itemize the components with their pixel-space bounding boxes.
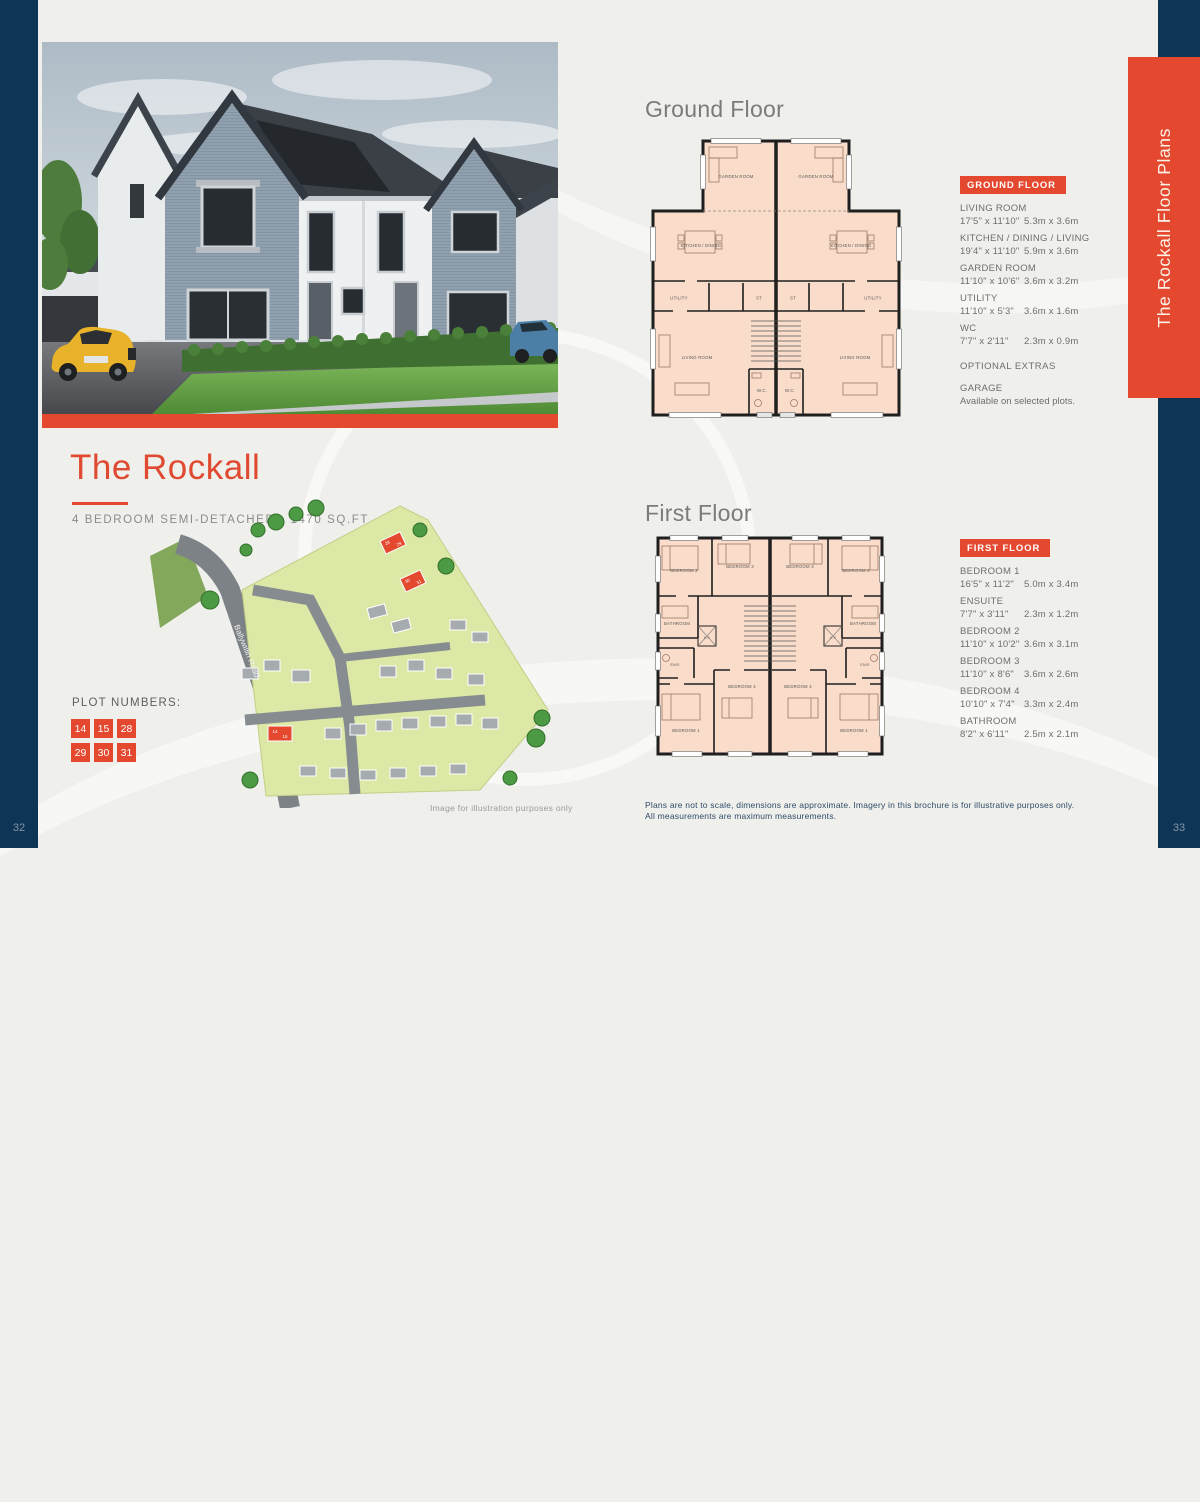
spec-row: UTILITY 11'10" x 5'3"3.6m x 1.6m — [960, 292, 1135, 318]
ground-floor-heading: Ground Floor — [645, 96, 784, 123]
room-label: BEDROOM 3 — [726, 564, 754, 569]
room-label: W.C. — [757, 388, 767, 393]
room-label: BATHROOM — [850, 621, 876, 626]
spec-row: LIVING ROOM 17'5" x 11'10"5.3m x 3.6m — [960, 202, 1135, 228]
room-label: GARDEN ROOM — [718, 174, 753, 179]
side-banner-label: The Rockall Floor Plans — [1154, 128, 1175, 328]
house-photo — [42, 42, 558, 414]
garage-row: GARAGE Available on selected plots. — [960, 382, 1135, 408]
optional-extras-label: OPTIONAL EXTRAS — [960, 360, 1135, 373]
image-caption: Image for illustration purposes only — [430, 803, 573, 813]
first-floor-heading: First Floor — [645, 500, 752, 527]
room-label: KITCHEN / DINING — [681, 243, 722, 248]
site-plan: 28 29 30 31 14 15 Ballywillin Road — [150, 478, 562, 808]
room-label: BATHROOM — [664, 621, 690, 626]
room-label: BEDROOM 2 — [842, 568, 870, 573]
ground-floor-plan-drawing: GARDEN ROOM GARDEN ROOM KITCHEN / DINING… — [645, 131, 907, 423]
room-label: H.P — [830, 636, 836, 640]
room-label: LIVING ROOM — [840, 355, 871, 360]
room-label: H.P — [704, 636, 710, 640]
spec-row: BEDROOM 2 11'10" x 10'2"3.6m x 3.1m — [960, 625, 1135, 651]
room-label: KITCHEN / DINING — [831, 243, 872, 248]
room-label: LIVING ROOM — [682, 355, 713, 360]
plot-badge: 29 — [71, 743, 90, 762]
plot-marker: 15 — [282, 734, 288, 739]
room-label: EN/S — [860, 663, 870, 667]
room-label: BEDROOM 4 — [784, 684, 812, 689]
room-label: UTILITY — [864, 296, 881, 301]
room-label: BEDROOM 4 — [728, 684, 756, 689]
disclaimer-line-1: Plans are not to scale, dimensions are a… — [645, 800, 1074, 811]
plot-badge: 14 — [71, 719, 90, 738]
disclaimer: Plans are not to scale, dimensions are a… — [645, 800, 1074, 822]
title-underline — [72, 502, 128, 505]
plot-badges-row-2: 29 30 31 — [71, 743, 136, 762]
spec-row: ENSUITE 7'7" x 3'11"2.3m x 1.2m — [960, 595, 1135, 621]
spec-row: WC 7'7" x 2'11"2.3m x 0.9m — [960, 322, 1135, 348]
room-label: ST — [756, 296, 762, 301]
plot-marker: 14 — [272, 729, 278, 734]
plot-badge: 15 — [94, 719, 113, 738]
disclaimer-line-2: All measurements are maximum measurement… — [645, 811, 1074, 822]
spec-row: KITCHEN / DINING / LIVING 19'4" x 11'10"… — [960, 232, 1135, 258]
page-number-right: 33 — [1158, 822, 1200, 834]
room-label: BEDROOM 2 — [670, 568, 698, 573]
plot-badges-row-1: 14 15 28 — [71, 719, 136, 738]
room-label: GARDEN ROOM — [798, 174, 833, 179]
site-plan-drawing: 28 29 30 31 14 15 Ballywillin Road — [150, 478, 562, 808]
first-floor-spec-panel: FIRST FLOOR BEDROOM 1 16'5" x 11'2"5.0m … — [960, 538, 1135, 745]
first-floor-plan-drawing: BEDROOM 2 BEDROOM 2 BEDROOM 3 BEDROOM 3 … — [650, 530, 890, 762]
first-floor-plan: BEDROOM 2 BEDROOM 2 BEDROOM 3 BEDROOM 3 … — [650, 530, 890, 762]
ground-floor-spec-title: GROUND FLOOR — [960, 176, 1066, 194]
left-page-edge: 32 — [0, 0, 38, 848]
plot-badge: 30 — [94, 743, 113, 762]
spec-row: GARDEN ROOM 11'10" x 10'6"3.6m x 3.2m — [960, 262, 1135, 288]
room-label: BEDROOM 1 — [672, 728, 700, 733]
spec-row: BEDROOM 1 16'5" x 11'2"5.0m x 3.4m — [960, 565, 1135, 591]
room-label: BEDROOM 3 — [786, 564, 814, 569]
ground-floor-plan: GARDEN ROOM GARDEN ROOM KITCHEN / DINING… — [645, 131, 907, 423]
room-label: EN/S — [670, 663, 680, 667]
spec-row: BATHROOM 8'2" x 6'11"2.5m x 2.1m — [960, 715, 1135, 741]
first-floor-spec-title: FIRST FLOOR — [960, 539, 1050, 557]
ground-floor-spec-panel: GROUND FLOOR LIVING ROOM 17'5" x 11'10"5… — [960, 175, 1135, 412]
room-label: ST — [790, 296, 796, 301]
plot-badge: 28 — [117, 719, 136, 738]
room-label: BEDROOM 1 — [840, 728, 868, 733]
room-label: UTILITY — [670, 296, 687, 301]
spec-row: BEDROOM 3 11'10" x 8'6"3.6m x 2.6m — [960, 655, 1135, 681]
plot-numbers-label: PLOT NUMBERS: — [72, 697, 181, 709]
centre-elevation — [297, 196, 433, 340]
photo-accent-bar — [42, 414, 558, 428]
room-label: W.C. — [785, 388, 795, 393]
side-banner: The Rockall Floor Plans — [1128, 57, 1200, 398]
house-render — [42, 42, 558, 414]
page-number-left: 32 — [0, 822, 38, 834]
spec-row: BEDROOM 4 10'10" x 7'4"3.3m x 2.4m — [960, 685, 1135, 711]
plot-badge: 31 — [117, 743, 136, 762]
